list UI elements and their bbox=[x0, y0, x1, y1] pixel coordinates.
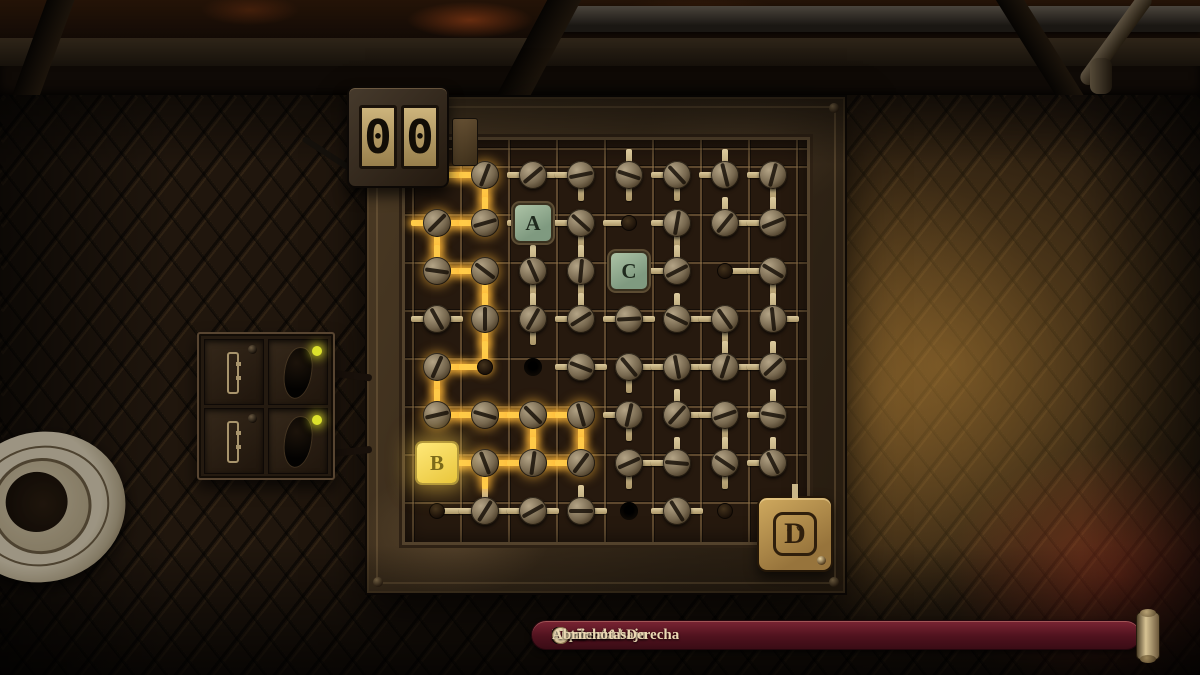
rotatable-piece-r4c2[interactable] bbox=[471, 305, 499, 333]
screw-slot bbox=[617, 316, 641, 321]
screw-slot bbox=[762, 263, 785, 279]
rotatable-piece-r2c8[interactable] bbox=[759, 209, 787, 237]
screw-slot bbox=[716, 308, 733, 330]
selector-wire-stub bbox=[792, 484, 798, 498]
screw-slot bbox=[768, 163, 778, 187]
screw-slot bbox=[667, 405, 686, 426]
counter-digit: 0 bbox=[401, 105, 439, 169]
rotatable-piece-r7c4[interactable] bbox=[567, 449, 595, 477]
rotatable-piece-r6c4[interactable] bbox=[567, 401, 595, 429]
scroll-cap bbox=[1140, 655, 1156, 663]
screw-slot bbox=[526, 259, 539, 283]
screw-slot bbox=[570, 311, 592, 327]
screw-slot bbox=[617, 456, 641, 469]
rotatable-piece-r7c5[interactable] bbox=[615, 449, 643, 477]
rotatable-piece-r4c7[interactable] bbox=[711, 305, 739, 333]
screw-slot bbox=[425, 267, 449, 274]
screw-slot bbox=[477, 500, 493, 522]
screw-icon bbox=[248, 345, 257, 354]
rotatable-piece-r8c2[interactable] bbox=[471, 497, 499, 525]
status-led bbox=[312, 346, 322, 356]
rotatable-piece-r8c4[interactable] bbox=[567, 497, 595, 525]
rotatable-piece-r7c6[interactable] bbox=[663, 449, 691, 477]
rotatable-piece-r6c2[interactable] bbox=[471, 401, 499, 429]
terminal-tile-b[interactable]: B bbox=[417, 443, 457, 483]
rotatable-piece-r3c2[interactable] bbox=[471, 257, 499, 285]
switch-device bbox=[197, 332, 335, 480]
keyhole-slot bbox=[227, 352, 239, 394]
rotatable-piece-r1c3[interactable] bbox=[519, 161, 547, 189]
screw-slot bbox=[665, 312, 688, 326]
rotatable-piece-r4c3[interactable] bbox=[519, 305, 547, 333]
rotatable-piece-r4c8[interactable] bbox=[759, 305, 787, 333]
rotatable-piece-r2c4[interactable] bbox=[567, 209, 595, 237]
junction-node-r2c5[interactable] bbox=[621, 215, 637, 231]
junction-node-r3c7[interactable] bbox=[717, 263, 733, 279]
selector-tile-d[interactable]: ˄˅ D bbox=[757, 496, 833, 572]
rotatable-piece-r6c7[interactable] bbox=[711, 401, 739, 429]
empty-socket-r8c5 bbox=[620, 502, 638, 520]
screw-slot bbox=[763, 357, 783, 376]
screw-slot bbox=[569, 171, 593, 180]
hint-label: Abrir notas bbox=[552, 627, 626, 644]
screw-slot bbox=[761, 411, 785, 419]
screw-slot bbox=[525, 308, 540, 331]
screw-slot bbox=[770, 307, 776, 331]
screw-slot bbox=[425, 410, 449, 419]
screw-slot bbox=[473, 218, 497, 228]
terminal-tile-a[interactable]: A bbox=[515, 205, 551, 241]
rotatable-piece-r1c4[interactable] bbox=[567, 161, 595, 189]
shelf-edge bbox=[0, 38, 1200, 68]
screw-slot bbox=[474, 262, 496, 280]
key-slot-panel[interactable] bbox=[204, 339, 264, 405]
rotatable-piece-r5c7[interactable] bbox=[711, 353, 739, 381]
screw-slot bbox=[673, 355, 682, 379]
grid-cell-r7c1: B bbox=[413, 439, 461, 487]
screw-slot bbox=[483, 307, 487, 331]
rotatable-piece-r2c2[interactable] bbox=[471, 209, 499, 237]
screw-slot bbox=[665, 264, 688, 278]
junction-node-r5c2[interactable] bbox=[477, 359, 493, 375]
screw-slot bbox=[716, 212, 734, 233]
rotatable-piece-r3c1[interactable] bbox=[423, 257, 451, 285]
rotatable-piece-r5c8[interactable] bbox=[759, 353, 787, 381]
screw-slot bbox=[572, 452, 590, 474]
vignette bbox=[0, 95, 1200, 675]
cup-interior bbox=[0, 466, 73, 538]
notes-scroll-icon bbox=[1136, 612, 1160, 660]
rotatable-piece-r2c1[interactable] bbox=[423, 209, 451, 237]
rotatable-piece-r6c5[interactable] bbox=[615, 401, 643, 429]
rotatable-piece-r4c5[interactable] bbox=[615, 305, 643, 333]
screw-slot bbox=[523, 166, 544, 184]
screw-slot bbox=[669, 500, 685, 522]
empty-socket-r5c3 bbox=[524, 358, 542, 376]
rotatable-piece-r3c6[interactable] bbox=[663, 257, 691, 285]
rotatable-piece-r1c5[interactable] bbox=[615, 161, 643, 189]
screw-slot bbox=[569, 509, 593, 513]
junction-node-r8c7[interactable] bbox=[717, 503, 733, 519]
rotatable-piece-r3c4[interactable] bbox=[567, 257, 595, 285]
screw-slot bbox=[578, 259, 584, 283]
screw-slot bbox=[571, 213, 592, 232]
rotatable-piece-r7c2[interactable] bbox=[471, 449, 499, 477]
screw-slot bbox=[479, 451, 491, 475]
screw-slot bbox=[720, 163, 730, 187]
status-led bbox=[312, 415, 322, 425]
screw-slot bbox=[430, 355, 443, 379]
screw-slot bbox=[766, 451, 780, 474]
rotatable-piece-r8c6[interactable] bbox=[663, 497, 691, 525]
rotatable-piece-r1c8[interactable] bbox=[759, 161, 787, 189]
rotatable-piece-r5c1[interactable] bbox=[423, 353, 451, 381]
key-slot-panel[interactable] bbox=[204, 408, 264, 474]
screw-slot bbox=[620, 357, 638, 378]
rotatable-piece-r7c3[interactable] bbox=[519, 449, 547, 477]
rotatable-piece-r6c1[interactable] bbox=[423, 401, 451, 429]
screw-slot bbox=[522, 503, 545, 518]
lever-panel[interactable] bbox=[268, 408, 328, 474]
move-counter: 0 0 bbox=[347, 86, 449, 188]
lever-panel[interactable] bbox=[268, 339, 328, 405]
screw-slot bbox=[713, 409, 737, 421]
screw-slot bbox=[523, 405, 543, 425]
counter-bracket bbox=[452, 118, 478, 166]
screw-icon bbox=[817, 556, 826, 565]
screw-slot bbox=[673, 211, 681, 235]
screw-slot bbox=[427, 213, 447, 233]
junction-node-r8c1[interactable] bbox=[429, 503, 445, 519]
rotatable-piece-r6c6[interactable] bbox=[663, 401, 691, 429]
screw-slot bbox=[576, 403, 586, 427]
screw-slot bbox=[714, 455, 736, 472]
counter-digit: 0 bbox=[359, 105, 397, 169]
screw-icon bbox=[248, 414, 257, 423]
screw-slot bbox=[529, 451, 536, 475]
terminal-tile-c[interactable]: C bbox=[611, 253, 647, 289]
shelf-face bbox=[0, 66, 1200, 98]
rotatable-piece-r5c4[interactable] bbox=[567, 353, 595, 381]
metal-rod-elbow bbox=[1090, 58, 1112, 94]
rotatable-piece-r7c8[interactable] bbox=[759, 449, 787, 477]
screw-slot bbox=[473, 410, 497, 420]
screw-slot bbox=[719, 355, 730, 379]
keyhole-slot bbox=[227, 421, 239, 463]
rotatable-piece-r7c7[interactable] bbox=[711, 449, 739, 477]
rotatable-piece-r3c8[interactable] bbox=[759, 257, 787, 285]
scroll-cap bbox=[1140, 609, 1156, 617]
rotatable-piece-r4c1[interactable] bbox=[423, 305, 451, 333]
rotatable-piece-r5c6[interactable] bbox=[663, 353, 691, 381]
rotatable-piece-r1c7[interactable] bbox=[711, 161, 739, 189]
rotatable-piece-r6c3[interactable] bbox=[519, 401, 547, 429]
rotatable-piece-r2c6[interactable] bbox=[663, 209, 691, 237]
game-screen: ACB 0 0 ˄˅ D SWArrib bbox=[0, 0, 1200, 675]
rotatable-piece-r3c3[interactable] bbox=[519, 257, 547, 285]
rotatable-piece-r2c7[interactable] bbox=[711, 209, 739, 237]
screw-slot bbox=[429, 308, 444, 331]
screw-slot bbox=[617, 169, 641, 180]
lever-handle bbox=[282, 347, 313, 399]
lever-handle bbox=[282, 416, 313, 468]
screw-slot bbox=[667, 165, 686, 185]
selector-label: D bbox=[773, 512, 817, 556]
screw-slot bbox=[624, 403, 633, 427]
screw-slot bbox=[761, 217, 785, 230]
rotatable-piece-r4c4[interactable] bbox=[567, 305, 595, 333]
screw-slot bbox=[479, 163, 491, 187]
rotatable-piece-r6c8[interactable] bbox=[759, 401, 787, 429]
metal-bar bbox=[545, 6, 1200, 32]
key-hint-bar: SWArriba / AbajoDAIzquierda / DerechaQER… bbox=[531, 620, 1141, 650]
rotatable-piece-r5c5[interactable] bbox=[615, 353, 643, 381]
rotatable-piece-r4c6[interactable] bbox=[663, 305, 691, 333]
screw-slot bbox=[569, 361, 593, 373]
rotatable-piece-r1c6[interactable] bbox=[663, 161, 691, 189]
screw-slot bbox=[665, 460, 689, 466]
rotatable-piece-r8c3[interactable] bbox=[519, 497, 547, 525]
